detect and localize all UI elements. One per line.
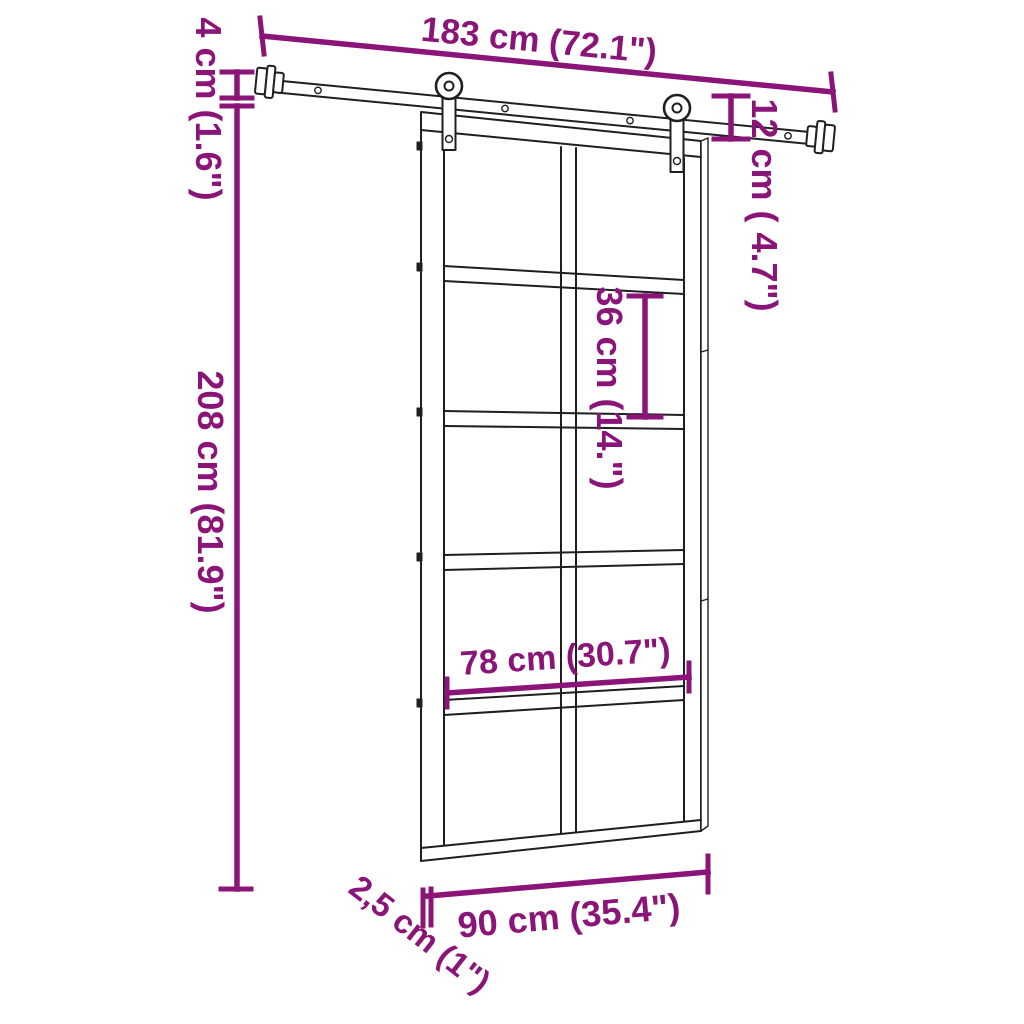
diagram-svg: 183 cm (72.1") 4 cm (1.6") 208 cm (81.9"…	[0, 0, 1024, 1024]
dim-label-door-height: 208 cm (81.9")	[190, 370, 231, 613]
dim-label-door-width: 90 cm (35.4")	[456, 885, 682, 945]
door-panel	[417, 112, 708, 861]
dim-label-hanger-offset: 12 cm ( 4.7")	[744, 98, 785, 311]
roller-right-bolt	[674, 158, 681, 165]
roller-right-hub	[673, 104, 682, 113]
rail-stopper-right	[805, 120, 835, 154]
dim-label-pane-height: 36 cm (14.")	[589, 286, 630, 489]
rail-stopper-left	[255, 65, 285, 99]
roller-left-bolt	[446, 136, 453, 143]
product-dimension-diagram: 183 cm (72.1") 4 cm (1.6") 208 cm (81.9"…	[0, 0, 1024, 1024]
door-side-face	[701, 138, 708, 831]
dim-label-rail-profile-height: 4 cm (1.6")	[188, 17, 229, 200]
roller-left-hub	[445, 82, 454, 91]
